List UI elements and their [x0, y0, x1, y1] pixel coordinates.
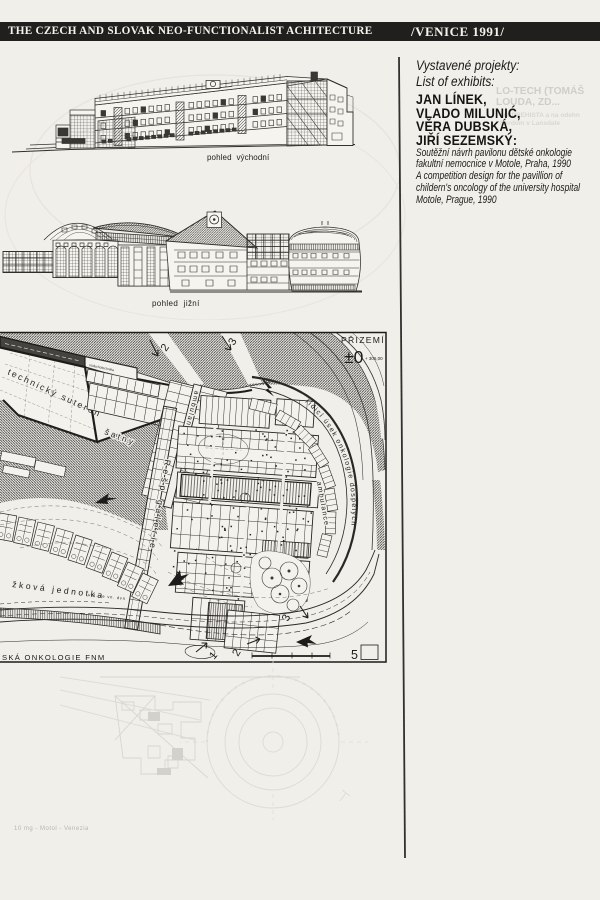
- svg-text:±0: ±0: [344, 347, 364, 367]
- svg-text:+ 306,00: + 306,00: [365, 356, 383, 361]
- svg-text:PŘIZEMÍ: PŘIZEMÍ: [341, 335, 385, 345]
- svg-text:ust. ve vn. dvn: ust. ve vn. dvn: [88, 592, 126, 601]
- svg-text:3: 3: [280, 613, 293, 624]
